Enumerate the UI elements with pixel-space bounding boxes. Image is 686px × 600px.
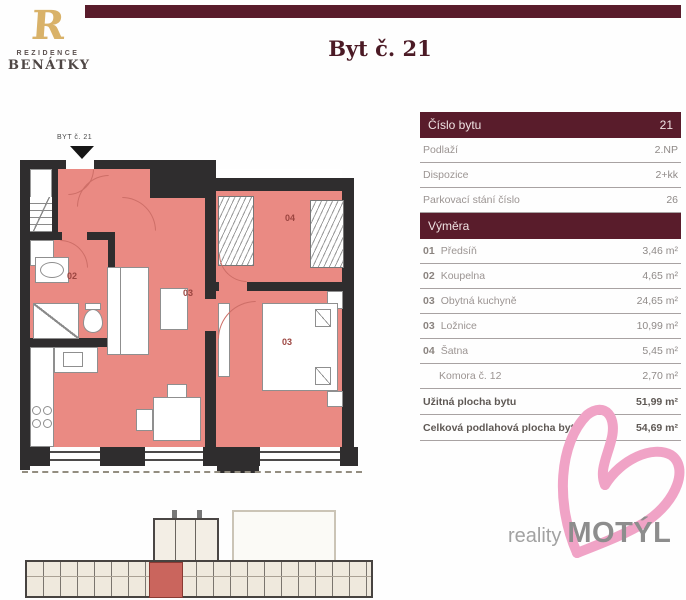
wall [87, 232, 115, 240]
table-row: Dispozice 2+kk [420, 163, 681, 188]
overview-mark [172, 510, 177, 518]
bedside-table [327, 391, 343, 407]
wall [94, 160, 150, 169]
wall [205, 291, 216, 299]
header-label: Číslo bytu [428, 118, 481, 132]
wall [100, 447, 145, 466]
row-label: Obytná kuchyně [441, 295, 517, 307]
wall [20, 447, 50, 466]
stove-burner [32, 419, 41, 428]
row-label: Předsíň [441, 245, 477, 257]
row-value: 2.NP [655, 144, 678, 156]
wall [216, 178, 354, 191]
exterior-gap [216, 169, 342, 178]
row-label: Ložnice [441, 320, 477, 332]
table-row: 02Koupelna 4,65 m² [420, 264, 681, 289]
table-section-header: Výměra [420, 213, 681, 239]
wardrobe-hatch [310, 200, 344, 268]
table-row: 03Ložnice 10,99 m² [420, 314, 681, 339]
wall [340, 447, 358, 466]
row-value: 3,46 m² [642, 245, 678, 257]
building-overview-plan [25, 508, 375, 600]
wall [20, 338, 115, 347]
wall [52, 169, 58, 239]
wall [247, 282, 354, 291]
floor-plan: BYT č. 21 [15, 133, 367, 485]
wall [205, 191, 216, 286]
row-value: 5,45 m² [642, 345, 678, 357]
unit-info-table: Číslo bytu 21 Podlaží 2.NP Dispozice 2+k… [420, 112, 681, 441]
overview-terrace-outline [232, 510, 336, 562]
balcony-line [22, 471, 362, 473]
staircase-steps [30, 197, 52, 233]
sink-basin [63, 352, 83, 367]
overview-building-strip [25, 560, 373, 598]
table-header-unit-number: Číslo bytu 21 [420, 112, 681, 138]
table-row: Podlaží 2.NP [420, 138, 681, 163]
entry-label: BYT č. 21 [57, 134, 92, 141]
room-label-living: 03 [183, 288, 193, 298]
kitchen-counter [30, 347, 54, 447]
wall [205, 331, 216, 447]
brand-line1: REZIDENCE [8, 50, 88, 57]
stove-burner [43, 419, 52, 428]
logo-prefix: reality [508, 525, 561, 548]
overview-core-section [153, 518, 219, 564]
row-label: Užitná plocha bytu [423, 396, 516, 408]
wall [217, 447, 259, 473]
dining-table [153, 397, 201, 441]
overview-highlighted-unit [149, 562, 183, 598]
chair [136, 409, 153, 431]
row-value: 24,65 m² [637, 295, 678, 307]
row-value: 26 [666, 194, 678, 206]
wall [20, 232, 62, 240]
table-row: Parkovací stání číslo 26 [420, 188, 681, 213]
room-number: 04 [423, 345, 435, 357]
section-header-label: Výměra [428, 219, 469, 233]
wall [22, 160, 66, 169]
overview-wall-line [195, 520, 196, 562]
brand-line2: BENÁTKY [8, 58, 88, 73]
table-row: 03Obytná kuchyně 24,65 m² [420, 289, 681, 314]
row-value: 2,70 m² [642, 370, 678, 382]
stove-burner [43, 406, 52, 415]
row-label: Komora č. 12 [439, 370, 501, 382]
wall [205, 282, 219, 291]
room-number: 02 [423, 270, 435, 282]
overview-mark [197, 510, 202, 518]
stove-burner [32, 406, 41, 415]
room-number: 01 [423, 245, 435, 257]
header-value: 21 [660, 118, 673, 132]
room-label-bedroom: 03 [282, 337, 292, 347]
window [260, 451, 340, 461]
wall [20, 160, 30, 470]
row-label: Podlaží [423, 144, 458, 156]
sofa-seat [120, 267, 149, 355]
entry-arrow-icon [70, 146, 94, 159]
rezidence-benatky-logo: R REZIDENCE BENÁTKY [8, 4, 88, 73]
table-row: 04Šatna 5,45 m² [420, 339, 681, 364]
toilet [83, 309, 103, 333]
row-label: Koupelna [441, 270, 485, 282]
pillow [315, 309, 331, 327]
room-label-bathroom: 02 [67, 271, 77, 281]
table-row: 01Předsíň 3,46 m² [420, 239, 681, 264]
room-number: 03 [423, 295, 435, 307]
header-bar [85, 5, 681, 18]
sofa-back [107, 267, 121, 355]
room-number: 03 [423, 320, 435, 332]
window [50, 451, 100, 461]
brand-monogram-icon: R [6, 4, 89, 48]
shower [33, 303, 79, 339]
reality-motyl-logo: reality MOTÝL [508, 517, 686, 550]
row-label: Šatna [441, 345, 468, 357]
pillow [315, 367, 331, 385]
logo-name: MOTÝL [567, 517, 671, 550]
overview-corridor-line [27, 576, 371, 577]
row-value: 10,99 m² [637, 320, 678, 332]
window [145, 451, 203, 461]
row-label: Dispozice [423, 169, 469, 181]
overview-wall-line [175, 520, 176, 562]
property-datasheet-page: R REZIDENCE BENÁTKY Byt č. 21 BYT č. 21 [0, 0, 686, 600]
page-title: Byt č. 21 [300, 36, 460, 61]
table-row: Komora č. 12 2,70 m² [420, 364, 681, 389]
row-value: 2+kk [656, 169, 678, 181]
row-value: 4,65 m² [642, 270, 678, 282]
room-label-wardrobe: 04 [285, 213, 295, 223]
row-label: Parkovací stání číslo [423, 194, 520, 206]
